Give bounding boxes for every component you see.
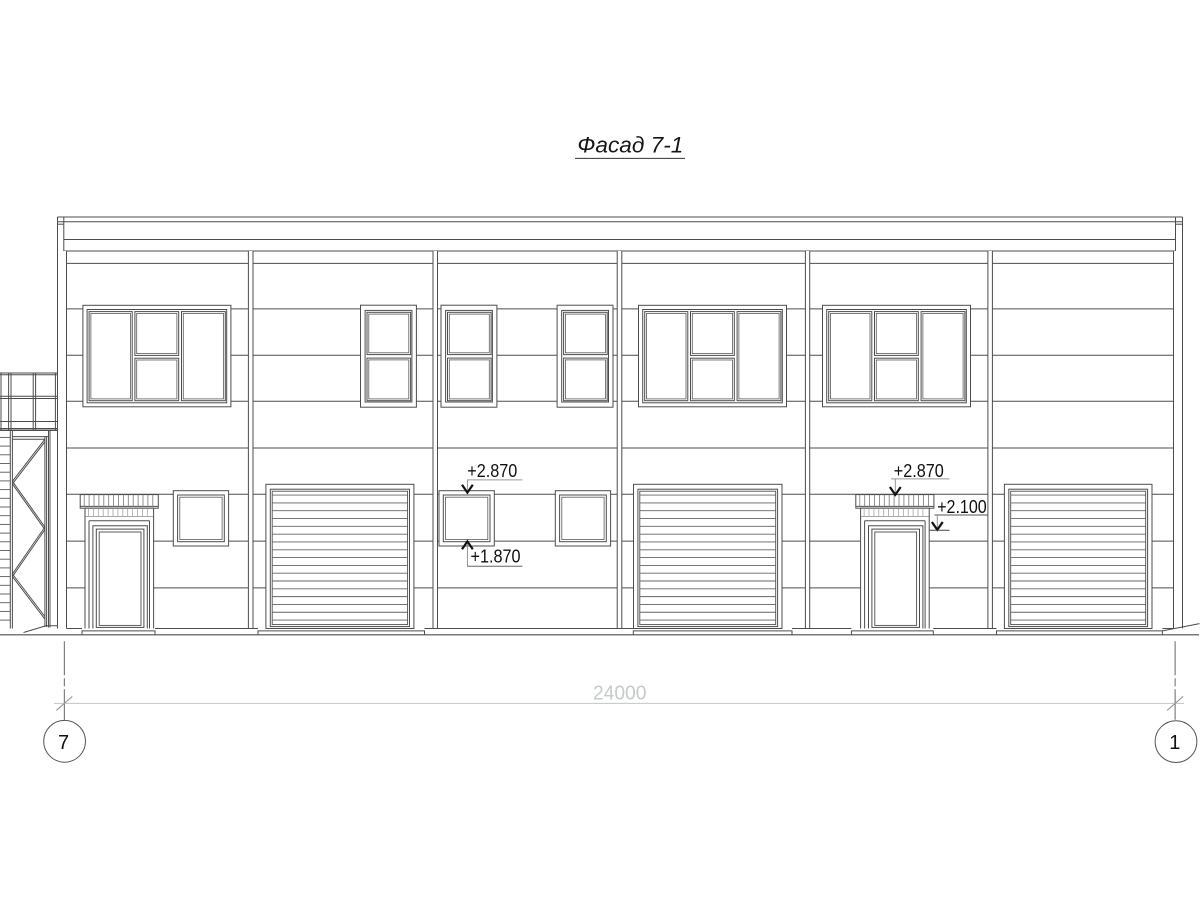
svg-text:24000: 24000 <box>593 682 647 705</box>
svg-text:Фасад 7-1: Фасад 7-1 <box>577 133 683 158</box>
svg-text:+1.870: +1.870 <box>471 546 521 567</box>
svg-text:7: 7 <box>58 732 69 754</box>
svg-text:1: 1 <box>1169 732 1180 754</box>
svg-text:+2.100: +2.100 <box>937 496 987 517</box>
svg-text:+2.870: +2.870 <box>467 460 517 481</box>
svg-text:+2.870: +2.870 <box>894 460 944 481</box>
